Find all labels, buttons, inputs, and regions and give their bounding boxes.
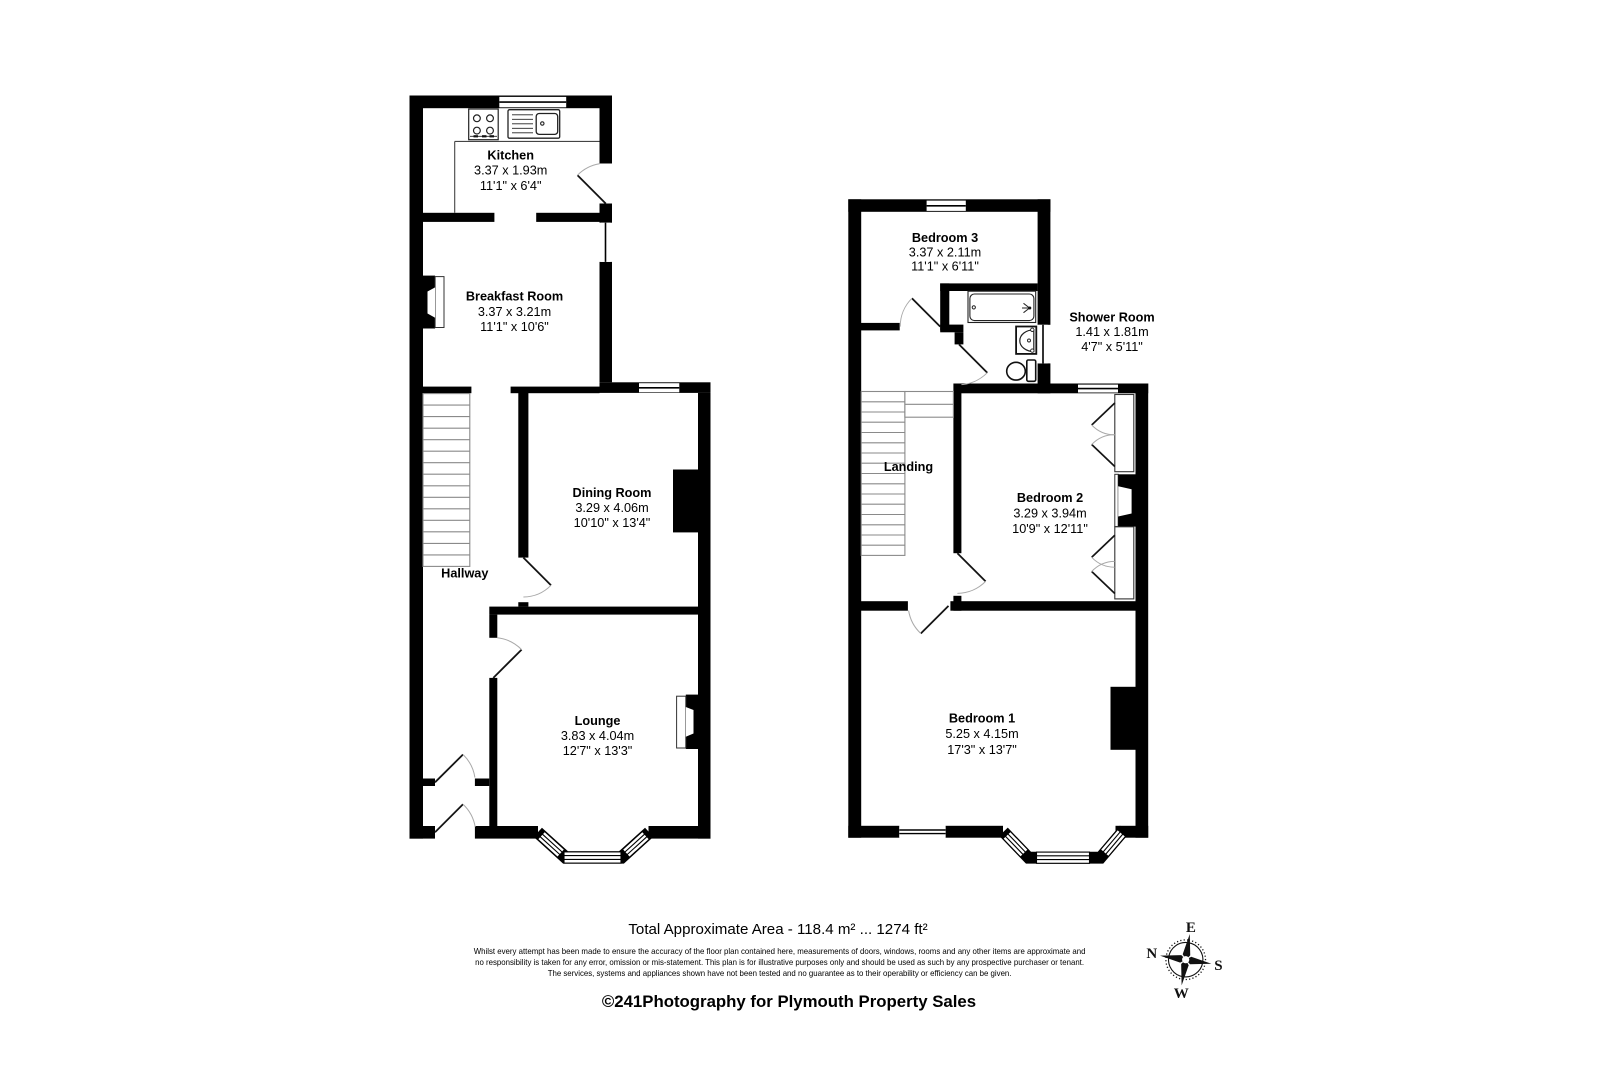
svg-text:Landing: Landing	[884, 460, 933, 474]
svg-text:3.29 x 3.94m: 3.29 x 3.94m	[1013, 507, 1086, 521]
svg-text:3.37 x 1.93m: 3.37 x 1.93m	[474, 164, 547, 178]
svg-text:Bedroom 2: Bedroom 2	[1017, 491, 1083, 505]
svg-text:no responsibility is taken for: no responsibility is taken for any error…	[475, 958, 1084, 967]
svg-text:3.37 x 2.11m: 3.37 x 2.11m	[909, 245, 981, 259]
svg-text:N: N	[1146, 946, 1157, 962]
svg-text:3.29 x 4.06m: 3.29 x 4.06m	[575, 501, 648, 515]
svg-text:5.25 x 4.15m: 5.25 x 4.15m	[945, 727, 1018, 741]
svg-text:©241Photography for Plymouth P: ©241Photography for Plymouth Property Sa…	[602, 992, 976, 1011]
svg-text:3.83 x 4.04m: 3.83 x 4.04m	[561, 729, 634, 743]
svg-text:E: E	[1186, 920, 1196, 936]
svg-text:Bedroom 1: Bedroom 1	[949, 711, 1015, 725]
svg-text:3.37 x 3.21m: 3.37 x 3.21m	[478, 305, 551, 319]
svg-text:Dining Room: Dining Room	[573, 486, 652, 500]
svg-text:S: S	[1214, 958, 1222, 974]
svg-text:12'7" x 13'3": 12'7" x 13'3"	[563, 744, 633, 758]
svg-text:The services, systems and appl: The services, systems and appliances sho…	[548, 969, 1012, 978]
svg-text:1.41 x 1.81m: 1.41 x 1.81m	[1075, 325, 1148, 339]
svg-text:Lounge: Lounge	[575, 714, 621, 728]
svg-text:W: W	[1174, 986, 1189, 1002]
svg-text:Bedroom 3: Bedroom 3	[912, 231, 978, 245]
svg-text:Kitchen: Kitchen	[487, 149, 534, 163]
svg-text:11'1" x 6'11": 11'1" x 6'11"	[911, 260, 979, 274]
svg-text:4'7" x 5'11": 4'7" x 5'11"	[1081, 340, 1143, 354]
svg-text:Total Approximate Area - 118.4: Total Approximate Area - 118.4 m² ... 12…	[628, 921, 927, 938]
svg-text:Breakfast Room: Breakfast Room	[466, 290, 563, 304]
svg-text:11'1" x 10'6": 11'1" x 10'6"	[480, 320, 549, 334]
svg-text:Shower Room: Shower Room	[1069, 310, 1154, 324]
svg-text:10'10" x 13'4": 10'10" x 13'4"	[574, 516, 651, 530]
svg-text:10'9" x 12'11": 10'9" x 12'11"	[1012, 522, 1088, 536]
svg-text:Hallway: Hallway	[441, 566, 488, 580]
svg-text:11'1" x 6'4": 11'1" x 6'4"	[480, 179, 542, 193]
svg-text:Whilst every attempt has been: Whilst every attempt has been made to en…	[474, 947, 1086, 956]
svg-text:17'3" x 13'7": 17'3" x 13'7"	[947, 743, 1017, 757]
